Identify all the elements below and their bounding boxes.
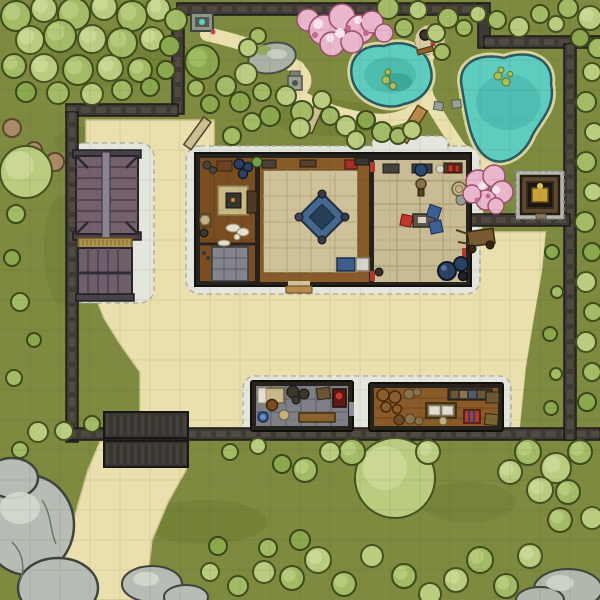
tree-highlight	[530, 480, 544, 494]
tree	[551, 286, 563, 298]
tree	[3, 119, 21, 137]
tree	[583, 363, 600, 381]
door-opening	[349, 402, 354, 416]
grain-sack	[415, 417, 423, 425]
tree	[239, 39, 257, 57]
tree	[165, 9, 187, 31]
basket	[200, 215, 210, 225]
tree	[28, 422, 48, 442]
tree	[584, 183, 600, 201]
hall-side-table	[262, 160, 276, 168]
shelf-box	[451, 391, 458, 398]
crate	[316, 387, 330, 400]
tree	[273, 455, 291, 473]
cherry-shadow	[486, 194, 491, 199]
tree	[223, 127, 241, 145]
cart-wheel	[486, 241, 494, 249]
barrel	[393, 405, 402, 414]
tree	[4, 250, 20, 266]
tree	[571, 29, 589, 47]
crate	[486, 392, 499, 403]
large-pot	[454, 257, 468, 271]
round-shield	[436, 165, 444, 173]
shrine-step	[536, 214, 546, 219]
porch-step	[286, 286, 312, 293]
shelf-box	[460, 391, 467, 398]
tree	[84, 416, 100, 432]
lantern-cap	[290, 71, 300, 76]
cherry-shadow	[312, 32, 318, 38]
tree-highlight	[4, 4, 21, 21]
tree-highlight	[520, 546, 533, 559]
tree-highlight	[61, 1, 79, 19]
sandal	[206, 256, 210, 260]
interior-wall	[255, 156, 260, 283]
red-cushion	[400, 214, 413, 227]
hall-side-table	[355, 158, 369, 165]
tree	[558, 0, 578, 18]
blue-futon	[337, 258, 355, 271]
tree	[160, 36, 180, 56]
tree	[419, 583, 441, 600]
tree	[228, 576, 248, 596]
tree-highlight	[188, 48, 207, 67]
paper-sheet	[418, 217, 426, 223]
door-opening	[288, 281, 310, 286]
rice-bundle	[234, 234, 240, 240]
tree-highlight	[394, 566, 407, 579]
tree	[545, 245, 559, 259]
cart-wheel	[468, 245, 476, 253]
tree	[488, 11, 506, 29]
tree	[11, 293, 29, 311]
tree	[259, 539, 277, 557]
potted-plant	[252, 157, 262, 167]
pond-plant	[498, 67, 504, 73]
tree	[575, 212, 595, 232]
striped-chest	[464, 410, 480, 423]
rock-highlight	[133, 572, 159, 586]
tree	[434, 44, 450, 60]
mat-cushion	[341, 213, 349, 221]
tree-highlight	[470, 550, 484, 564]
tree	[403, 121, 421, 139]
pond-plant	[502, 78, 510, 86]
tree	[47, 82, 69, 104]
tree-highlight	[446, 570, 459, 583]
mat-cushion	[295, 213, 303, 221]
tree-highlight	[570, 442, 583, 455]
stepping-stone	[452, 99, 462, 108]
dojo-mat	[383, 164, 399, 173]
barrel	[377, 389, 389, 401]
tree	[243, 113, 261, 131]
tree	[427, 24, 445, 42]
tree-highlight	[496, 576, 509, 589]
tree-highlight	[19, 29, 34, 44]
cherry-blossom-canopy	[488, 198, 504, 214]
genkan-stone-floor	[212, 247, 248, 281]
tree	[7, 205, 25, 223]
grain-sack	[405, 414, 415, 424]
cherry-highlight	[492, 186, 500, 194]
basket	[279, 410, 289, 420]
tree	[188, 80, 204, 96]
pond-plant	[382, 76, 390, 84]
tree	[222, 444, 238, 460]
tree-highlight	[295, 460, 308, 473]
tree-highlight	[130, 60, 143, 73]
tree	[409, 1, 427, 19]
barrel	[267, 400, 278, 411]
white-chest	[356, 258, 369, 271]
tree-highlight	[342, 442, 356, 456]
tree	[361, 545, 383, 567]
tree-highlight	[33, 57, 48, 72]
tree	[27, 333, 41, 347]
tree	[372, 122, 392, 142]
small-pot	[459, 272, 468, 281]
white-mat	[429, 406, 440, 415]
tree-highlight	[518, 442, 532, 456]
tree	[276, 86, 296, 106]
tree	[583, 63, 600, 81]
tree	[470, 6, 486, 22]
kitchen-sack	[210, 167, 217, 174]
battle-map	[0, 0, 600, 600]
tree	[6, 370, 22, 386]
hearth-ember	[231, 198, 235, 202]
tree	[576, 272, 596, 292]
boulder-highlight	[0, 492, 40, 524]
sliding-door-red	[370, 271, 375, 281]
lantern-core	[292, 80, 298, 86]
cherry-highlight	[313, 19, 323, 29]
cherry-shadow	[475, 198, 480, 203]
gate-roof	[104, 412, 188, 438]
teapot	[200, 229, 208, 237]
tree	[576, 92, 596, 112]
tree-highlight	[142, 29, 155, 42]
cherry-highlight	[354, 16, 362, 24]
tree	[576, 152, 596, 172]
pond-plant	[390, 83, 397, 90]
shelf-box	[478, 391, 485, 398]
red-armor	[335, 392, 343, 400]
armor-stand	[415, 164, 427, 176]
boulder	[0, 458, 38, 498]
cherry-shadow	[363, 30, 369, 36]
blue-cushion	[429, 220, 443, 234]
tree	[585, 123, 600, 141]
firewood-stack	[217, 161, 232, 171]
tree	[157, 61, 175, 79]
tree	[235, 63, 257, 85]
bucket-water	[261, 415, 266, 420]
blue-pot	[234, 159, 244, 169]
tree	[81, 83, 103, 105]
tree	[253, 83, 271, 101]
tree-highlight	[580, 8, 593, 21]
basket	[439, 417, 447, 425]
tree-highlight	[500, 462, 513, 475]
sandal	[202, 251, 206, 255]
small-creature	[375, 268, 383, 276]
dark-sack	[292, 396, 300, 404]
tree-highlight	[47, 23, 65, 41]
stepping-stone	[433, 101, 443, 110]
tree-highlight	[363, 446, 407, 490]
tree-highlight	[334, 574, 347, 587]
tree	[578, 393, 596, 411]
battle-map-canvas	[0, 0, 600, 600]
tree-highlight	[4, 56, 17, 69]
tree	[250, 438, 266, 454]
tree	[16, 82, 36, 102]
mat-cushion	[318, 190, 326, 198]
tree-highlight	[544, 456, 561, 473]
tree-highlight	[308, 550, 322, 564]
tree-highlight	[110, 31, 127, 48]
tree	[253, 561, 275, 583]
tree	[55, 422, 73, 440]
basin-water	[199, 19, 205, 25]
shelf-box	[469, 391, 476, 398]
tree	[584, 303, 600, 321]
scroll	[218, 240, 230, 246]
tree-highlight	[550, 510, 563, 523]
tree	[347, 131, 365, 149]
hall-side-table	[300, 160, 316, 167]
tree	[543, 327, 557, 341]
gate-roof	[104, 441, 188, 467]
tree	[588, 38, 600, 58]
cherry-highlight	[478, 182, 486, 190]
grid-overlay	[0, 0, 600, 600]
tree	[395, 19, 413, 37]
tree	[456, 20, 472, 36]
tree	[216, 76, 236, 96]
red-weapon	[455, 165, 459, 172]
tree-highlight	[120, 4, 137, 21]
tree	[583, 243, 600, 261]
tree	[576, 332, 596, 352]
barrel	[389, 391, 401, 403]
roof-ridge-beam	[102, 152, 110, 238]
tree	[544, 401, 558, 415]
tree	[550, 368, 562, 380]
sliding-door-red	[370, 162, 375, 172]
tree	[509, 17, 529, 37]
dummy-base	[418, 189, 424, 196]
white-mat	[442, 406, 453, 415]
